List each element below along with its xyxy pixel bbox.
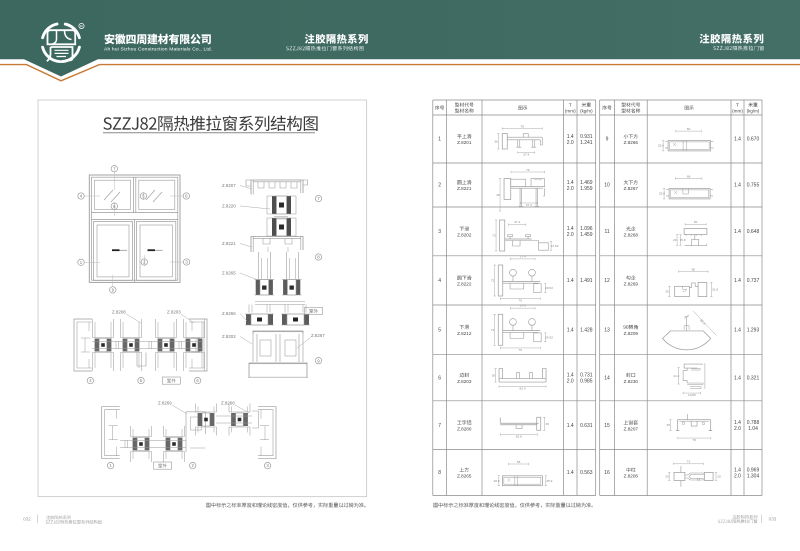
svg-text:(mm): (mm) bbox=[732, 109, 743, 114]
svg-text:1.4: 1.4 bbox=[734, 327, 741, 333]
svg-text:Z.8280: Z.8280 bbox=[457, 426, 472, 431]
svg-text:82.4: 82.4 bbox=[520, 387, 526, 391]
svg-text:1.4: 1.4 bbox=[734, 278, 741, 284]
svg-text:1.959: 1.959 bbox=[580, 186, 593, 192]
svg-text:58: 58 bbox=[517, 460, 521, 464]
svg-text:0.648: 0.648 bbox=[747, 229, 760, 235]
svg-text:1.4: 1.4 bbox=[567, 423, 574, 429]
svg-text:Z.8207: Z.8207 bbox=[222, 183, 236, 188]
svg-text:2: 2 bbox=[438, 183, 441, 189]
svg-text:73: 73 bbox=[687, 460, 691, 464]
svg-text:29: 29 bbox=[673, 238, 677, 242]
svg-text:Z.8203: Z.8203 bbox=[457, 379, 472, 384]
svg-text:68: 68 bbox=[687, 174, 691, 178]
svg-text:1.4: 1.4 bbox=[734, 229, 741, 235]
svg-text:79: 79 bbox=[519, 348, 523, 352]
svg-text:7: 7 bbox=[438, 423, 441, 429]
svg-text:3: 3 bbox=[438, 229, 441, 235]
svg-text:Z.8206: Z.8206 bbox=[624, 474, 639, 479]
svg-text:48: 48 bbox=[496, 193, 500, 197]
svg-text:37.4: 37.4 bbox=[526, 203, 532, 207]
svg-text:Z.8265: Z.8265 bbox=[222, 271, 236, 276]
svg-text:31.8: 31.8 bbox=[712, 288, 718, 292]
svg-text:50: 50 bbox=[694, 220, 698, 224]
svg-text:1.293: 1.293 bbox=[747, 327, 760, 333]
svg-text:78: 78 bbox=[692, 438, 696, 442]
svg-text:1.4: 1.4 bbox=[734, 375, 741, 381]
svg-text:79: 79 bbox=[526, 168, 530, 172]
svg-text:37.4: 37.4 bbox=[523, 153, 529, 157]
svg-text:1.459: 1.459 bbox=[580, 232, 593, 238]
svg-text:11: 11 bbox=[604, 229, 609, 235]
svg-text:(kg/m): (kg/m) bbox=[580, 109, 593, 114]
svg-text:1.4: 1.4 bbox=[734, 137, 741, 143]
svg-text:1.04: 1.04 bbox=[748, 426, 758, 432]
svg-text:(kg/m): (kg/m) bbox=[747, 109, 760, 114]
svg-text:36: 36 bbox=[546, 422, 550, 426]
svg-text:72: 72 bbox=[491, 328, 495, 332]
svg-text:0.985: 0.985 bbox=[580, 378, 593, 384]
svg-text:36: 36 bbox=[494, 139, 498, 143]
svg-text:0.321: 0.321 bbox=[747, 375, 760, 381]
svg-text:20: 20 bbox=[717, 474, 721, 478]
svg-text:0.737: 0.737 bbox=[747, 278, 760, 284]
svg-text:2.0: 2.0 bbox=[567, 232, 574, 238]
svg-text:19.85: 19.85 bbox=[688, 393, 696, 397]
svg-text:25.8: 25.8 bbox=[659, 192, 665, 196]
svg-text:1: 1 bbox=[438, 137, 441, 143]
svg-text:14: 14 bbox=[604, 375, 610, 381]
svg-text:58: 58 bbox=[692, 267, 696, 271]
svg-text:12: 12 bbox=[604, 278, 610, 284]
svg-text:0.670: 0.670 bbox=[747, 137, 760, 143]
svg-text:1.304: 1.304 bbox=[747, 473, 760, 479]
svg-text:Z.8203: Z.8203 bbox=[167, 310, 181, 315]
svg-text:0.563: 0.563 bbox=[580, 470, 593, 476]
svg-text:1.4: 1.4 bbox=[734, 183, 741, 189]
svg-text:1.4: 1.4 bbox=[567, 327, 574, 333]
svg-text:15: 15 bbox=[604, 423, 610, 429]
svg-text:Z.8265: Z.8265 bbox=[457, 474, 472, 479]
svg-text:Ah hui Sizhou Construction Mat: Ah hui Sizhou Construction Materials Co.… bbox=[104, 47, 212, 53]
svg-text:20.6: 20.6 bbox=[494, 479, 500, 483]
svg-text:R: R bbox=[80, 24, 83, 29]
svg-text:25: 25 bbox=[666, 423, 670, 427]
svg-text:033: 033 bbox=[769, 517, 777, 522]
svg-text:37.4: 37.4 bbox=[514, 220, 520, 224]
svg-text:13: 13 bbox=[604, 327, 610, 333]
svg-text:6: 6 bbox=[438, 375, 441, 381]
svg-text:Z.8221: Z.8221 bbox=[457, 186, 472, 191]
svg-text:9: 9 bbox=[606, 137, 609, 143]
svg-text:37.4: 37.4 bbox=[520, 254, 526, 258]
svg-text:1.491: 1.491 bbox=[580, 278, 593, 284]
svg-text:Z.8222: Z.8222 bbox=[457, 282, 472, 287]
svg-text:2.0: 2.0 bbox=[567, 186, 574, 192]
svg-text:Z.8202: Z.8202 bbox=[222, 334, 236, 339]
svg-text:25.9: 25.9 bbox=[546, 479, 552, 483]
svg-text:Z.8221: Z.8221 bbox=[222, 241, 236, 246]
svg-text:Z.8201: Z.8201 bbox=[457, 140, 472, 145]
svg-text:2.0: 2.0 bbox=[734, 426, 741, 432]
svg-text:1.241: 1.241 bbox=[580, 140, 593, 146]
svg-text:Z.8207: Z.8207 bbox=[624, 426, 639, 431]
svg-text:0.631: 0.631 bbox=[580, 423, 593, 429]
svg-text:8: 8 bbox=[438, 470, 441, 476]
svg-text:Z.8266: Z.8266 bbox=[222, 311, 236, 316]
svg-text:72: 72 bbox=[492, 234, 496, 238]
svg-text:2.0: 2.0 bbox=[567, 140, 574, 146]
svg-text:29.52: 29.52 bbox=[545, 335, 553, 339]
svg-text:1.4: 1.4 bbox=[567, 470, 574, 476]
svg-text:60: 60 bbox=[687, 127, 691, 131]
svg-text:Z.8209: Z.8209 bbox=[624, 331, 639, 336]
svg-text:25.6: 25.6 bbox=[658, 144, 664, 148]
svg-text:Z.8268: Z.8268 bbox=[221, 401, 235, 406]
svg-text:Z.8267: Z.8267 bbox=[311, 333, 325, 338]
svg-text:Z.8269: Z.8269 bbox=[158, 401, 172, 406]
svg-text:Z.8220: Z.8220 bbox=[222, 204, 236, 209]
svg-text:23.52: 23.52 bbox=[551, 244, 559, 248]
svg-text:Z.8230: Z.8230 bbox=[624, 379, 639, 384]
svg-text:Z.8266: Z.8266 bbox=[624, 140, 639, 145]
svg-text:25.8: 25.8 bbox=[680, 238, 686, 242]
svg-text:21.2: 21.2 bbox=[673, 374, 679, 378]
svg-text:10: 10 bbox=[604, 183, 610, 189]
svg-text:20: 20 bbox=[665, 289, 669, 293]
svg-text:5: 5 bbox=[438, 327, 441, 333]
svg-text:78: 78 bbox=[521, 124, 525, 128]
svg-text:Z.8269: Z.8269 bbox=[624, 282, 639, 287]
svg-text:82.8: 82.8 bbox=[516, 435, 522, 439]
svg-text:Z.8202: Z.8202 bbox=[457, 233, 472, 238]
svg-text:Z.8208: Z.8208 bbox=[112, 310, 126, 315]
svg-text:37.4: 37.4 bbox=[520, 304, 526, 308]
svg-text:(mm): (mm) bbox=[565, 109, 576, 114]
svg-text:2.0: 2.0 bbox=[734, 473, 741, 479]
svg-text:Z.8212: Z.8212 bbox=[457, 331, 472, 336]
svg-text:72: 72 bbox=[491, 279, 495, 283]
svg-text:Z.8267: Z.8267 bbox=[624, 186, 639, 191]
svg-text:1.4: 1.4 bbox=[567, 278, 574, 284]
svg-text:2.0: 2.0 bbox=[567, 378, 574, 384]
svg-text:16: 16 bbox=[604, 470, 610, 476]
svg-text:20: 20 bbox=[665, 474, 669, 478]
svg-text:032: 032 bbox=[23, 517, 31, 522]
svg-text:1.428: 1.428 bbox=[580, 327, 593, 333]
svg-text:30: 30 bbox=[492, 373, 496, 377]
svg-text:Z.8268: Z.8268 bbox=[624, 233, 639, 238]
svg-text:0.755: 0.755 bbox=[747, 183, 760, 189]
svg-text:29.52: 29.52 bbox=[545, 286, 553, 290]
svg-text:4: 4 bbox=[438, 278, 441, 284]
svg-text:79: 79 bbox=[519, 299, 523, 303]
